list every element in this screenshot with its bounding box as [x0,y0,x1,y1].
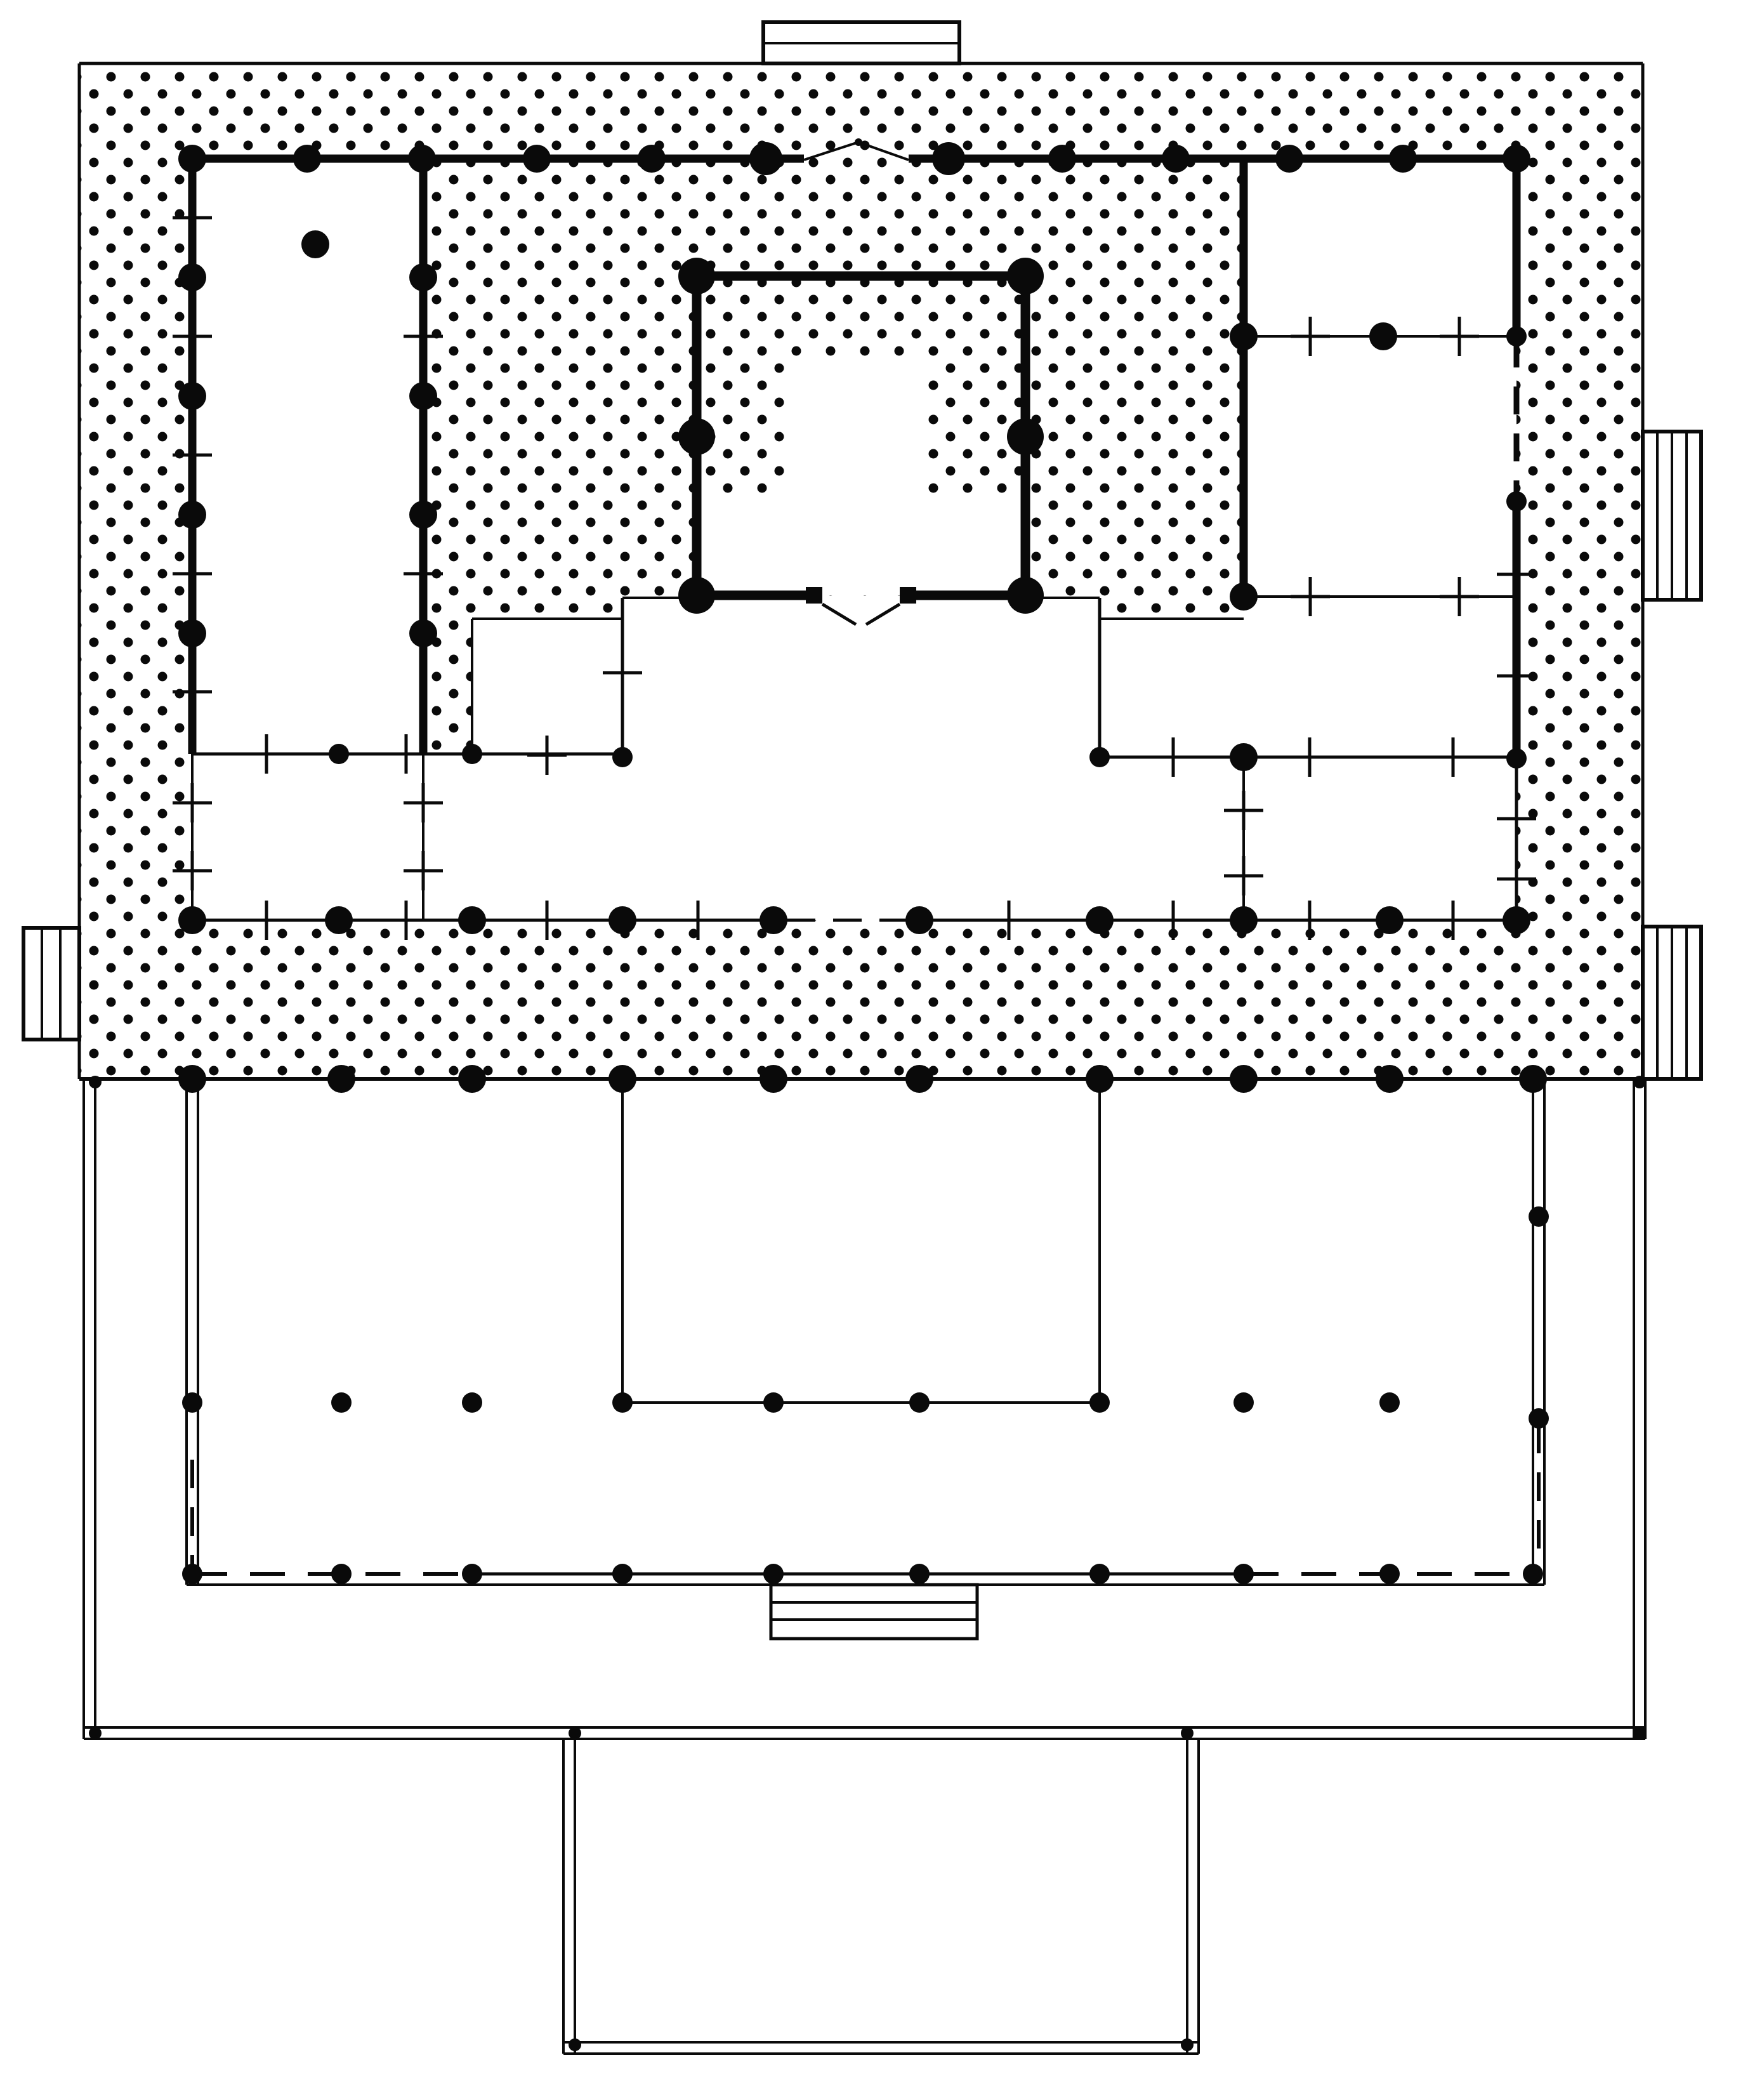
floor-plan-page [0,0,1743,2100]
stairs-bottom-center [771,1585,977,1639]
terrace-corner-dots [89,1076,1646,2051]
shrine-door-post-right [900,587,916,604]
rooms-middle-row [192,752,1516,920]
altar-platform [787,359,926,495]
chevron-pivot-dot [855,138,862,146]
plan-drawing [23,22,1701,2054]
shrine-door-post-left [806,587,822,604]
shrine-dais [697,495,1025,595]
stairs-left [23,928,79,1040]
hall-below-shrine [472,598,1244,752]
floor-plan-svg [0,0,1743,2100]
